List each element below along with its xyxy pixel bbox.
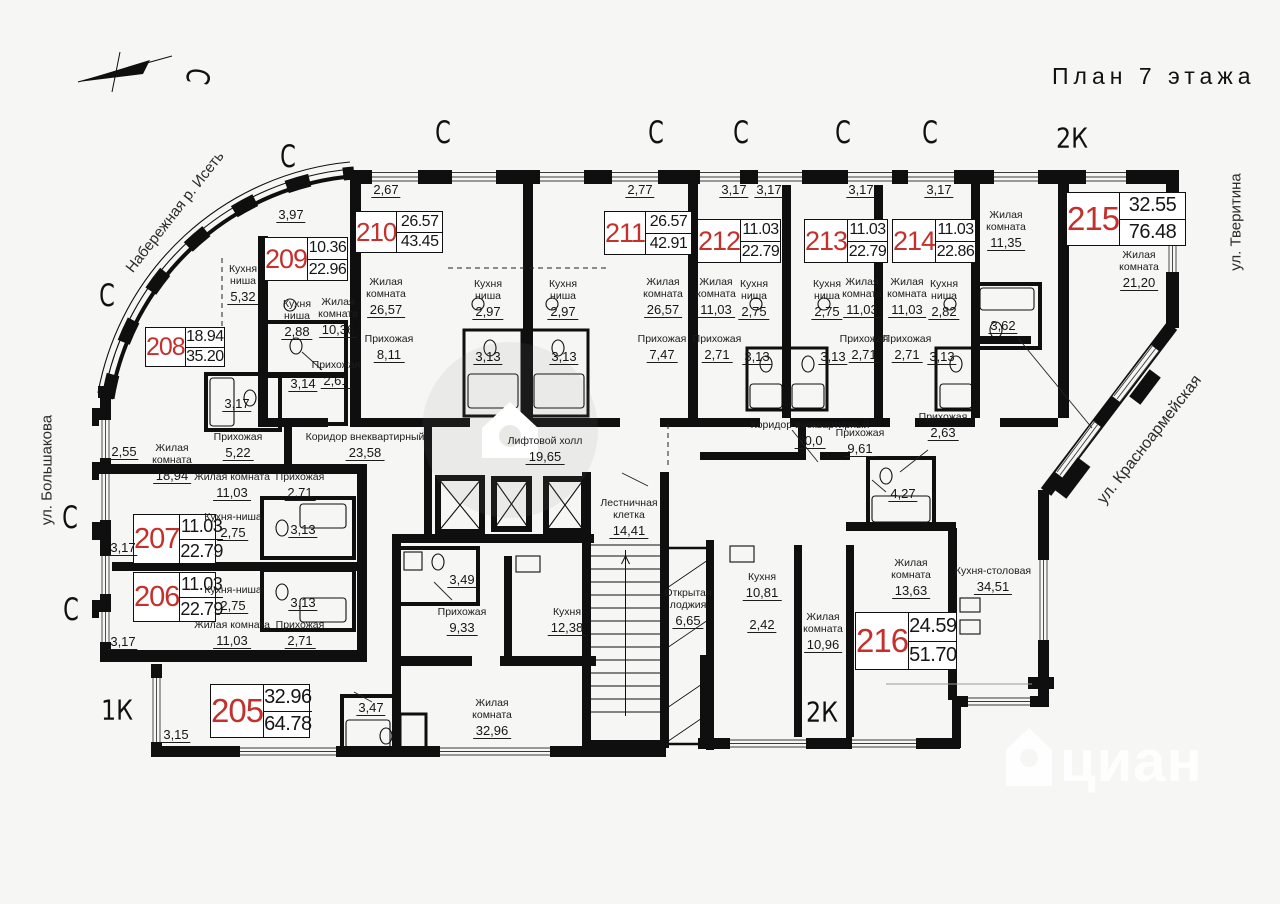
room-name: Прихожая bbox=[276, 472, 325, 484]
apartment-number: 208 bbox=[146, 328, 186, 366]
room-name: Жилая bbox=[643, 277, 683, 289]
room-label: Жилаякомната10,36 bbox=[318, 297, 358, 338]
room-area: 11,35 bbox=[987, 236, 1025, 252]
room-label: Кухня-ниша2,75 bbox=[204, 585, 262, 615]
apartment-number: 209 bbox=[265, 238, 308, 280]
section-mark: С bbox=[733, 115, 749, 152]
apartment-areas: 24.5951.70 bbox=[909, 613, 957, 669]
room-name: Прихожая bbox=[438, 607, 487, 619]
dimension-value: 3,97 bbox=[276, 207, 305, 223]
apartment-number: 207 bbox=[134, 515, 180, 563]
apartment-living-area: 10.36 bbox=[308, 238, 347, 259]
room-area: 9,61 bbox=[844, 442, 875, 458]
room-area: 18,94 bbox=[153, 469, 192, 485]
room-label: Жилаякомната26,57 bbox=[366, 277, 406, 318]
room-label: Жилаякомната26,57 bbox=[643, 277, 683, 318]
apartment-table: 21026.5743.45 bbox=[355, 211, 443, 253]
room-area: 9,33 bbox=[446, 621, 477, 637]
dimension-value: 3,17 bbox=[719, 182, 748, 198]
floorplan-page: { "title": "План 7 этажа", "watermark": … bbox=[0, 0, 1280, 904]
room-name: комната bbox=[842, 289, 882, 301]
room-area: 11,03 bbox=[213, 486, 251, 502]
apartment-areas: 32.9664.78 bbox=[264, 685, 312, 737]
apartment-table: 21211.0322.79 bbox=[697, 219, 781, 263]
room-area: 2,71 bbox=[284, 486, 315, 502]
room-label: Прихожая9,61 bbox=[836, 428, 885, 458]
apartment-table: 21411.0322.86 bbox=[892, 219, 976, 263]
dimension-value: 3,15 bbox=[161, 727, 190, 743]
room-area: 2,75 bbox=[217, 599, 248, 615]
room-label: Жилаякомната13,63 bbox=[891, 558, 931, 599]
apartment-total-area: 22.86 bbox=[936, 241, 975, 263]
room-name: Кухня-столовая bbox=[955, 566, 1031, 578]
room-name: Жилая bbox=[887, 277, 927, 289]
dimension-value: 2,55 bbox=[109, 444, 138, 460]
dimension-value: 3,13 bbox=[818, 349, 847, 365]
room-name: Жилая bbox=[696, 277, 736, 289]
room-area: 2,82 bbox=[928, 305, 959, 321]
room-name: комната bbox=[986, 222, 1026, 234]
room-name: Кухня bbox=[738, 279, 769, 291]
apartment-table: 21126.5742.91 bbox=[604, 211, 692, 255]
room-name: Прихожая bbox=[276, 620, 325, 632]
room-area: 12,38 bbox=[548, 621, 587, 637]
room-name: Прихожая bbox=[312, 360, 361, 372]
room-name: ниша bbox=[738, 291, 769, 303]
apartment-number: 213 bbox=[805, 220, 848, 262]
dimension-value: 3,17 bbox=[754, 182, 783, 198]
apartment-total-area: 42.91 bbox=[646, 233, 691, 255]
room-area: 13,63 bbox=[892, 584, 931, 600]
room-name: Жилая bbox=[891, 558, 931, 570]
dimension-value: 3,47 bbox=[356, 700, 385, 716]
room-name: Кухня bbox=[547, 279, 578, 291]
apartment-living-area: 26.57 bbox=[646, 212, 691, 233]
apartment-living-area: 11.03 bbox=[741, 220, 780, 241]
apartment-living-area: 26.57 bbox=[397, 212, 442, 232]
room-name: комната bbox=[643, 289, 683, 301]
room-name: Прихожая bbox=[836, 428, 885, 440]
room-area: 2,61 bbox=[320, 374, 351, 390]
room-area: 19,65 bbox=[526, 450, 565, 466]
dimension-value: 3,17 bbox=[222, 396, 251, 412]
room-name: Жилая комната bbox=[194, 620, 270, 632]
apartment-areas: 26.5742.91 bbox=[646, 212, 691, 254]
section-mark: С bbox=[835, 115, 851, 152]
apartment-total-area: 43.45 bbox=[397, 232, 442, 253]
room-name: клетка bbox=[600, 510, 657, 522]
room-area: 2,71 bbox=[284, 634, 315, 650]
apartment-areas: 11.0322.79 bbox=[848, 220, 887, 262]
room-area: 2,88 bbox=[281, 325, 312, 341]
dimension-value: 3,13 bbox=[288, 522, 317, 538]
dimension-value: 3,49 bbox=[447, 572, 476, 588]
apartment-number: 210 bbox=[356, 212, 397, 252]
apartment-table: 21624.5951.70 bbox=[855, 612, 957, 670]
room-name: Прихожая bbox=[919, 412, 968, 424]
apartment-number: 216 bbox=[856, 613, 909, 669]
apartment-living-area: 11.03 bbox=[936, 220, 975, 241]
room-area: 2,75 bbox=[738, 305, 769, 321]
section-mark: С bbox=[922, 115, 938, 152]
room-label: Прихожая2,71 bbox=[276, 472, 325, 502]
room-area: 8,11 bbox=[374, 348, 404, 364]
room-area: 14,41 bbox=[610, 524, 649, 540]
room-area: 11,03 bbox=[697, 303, 735, 319]
apartment-total-area: 22.79 bbox=[848, 241, 887, 263]
street-label: Набережная р. Исеть bbox=[122, 148, 227, 276]
room-label: Прихожая2,71 bbox=[693, 334, 742, 364]
room-name: Жилая bbox=[152, 443, 192, 455]
apartment-living-area: 32.96 bbox=[264, 685, 312, 711]
apartment-areas: 32.5576.48 bbox=[1120, 193, 1185, 245]
room-area: 2,63 bbox=[927, 426, 958, 442]
room-name: Кухня bbox=[811, 279, 842, 291]
apartment-living-area: 32.55 bbox=[1120, 193, 1185, 219]
room-label: Коридор внеквартирный23,58 bbox=[306, 432, 425, 462]
room-label: Жилая комната11,03 bbox=[194, 472, 270, 502]
room-name: Жилая bbox=[842, 277, 882, 289]
apartment-total-area: 22.79 bbox=[180, 539, 223, 564]
room-area: 11,03 bbox=[843, 303, 881, 319]
dimension-value: 4,27 bbox=[888, 486, 917, 502]
room-name: ниша bbox=[928, 291, 959, 303]
dimension-value: 3,13 bbox=[288, 595, 317, 611]
room-name: Жилая bbox=[472, 698, 512, 710]
room-area: 2,71 bbox=[848, 348, 879, 364]
dimension-value: 2,77 bbox=[625, 182, 654, 198]
room-label: Кухняниша5,32 bbox=[227, 264, 258, 305]
room-label: Прихожая2,61 bbox=[312, 360, 361, 390]
dimension-value: 3,13 bbox=[742, 349, 771, 365]
apartment-total-area: 35.20 bbox=[186, 347, 224, 367]
room-label: Кухня-ниша2,75 bbox=[204, 512, 262, 542]
room-label: Кухняниша2,75 bbox=[811, 279, 842, 320]
room-name: ниша bbox=[472, 291, 503, 303]
room-name: комната bbox=[152, 455, 192, 467]
section-mark: С bbox=[178, 65, 217, 87]
room-label: Прихожая9,33 bbox=[438, 607, 487, 637]
room-label: Жилаякомната11,03 bbox=[887, 277, 927, 318]
room-label: Кухняниша2,75 bbox=[738, 279, 769, 320]
room-label: Кухняниша2,82 bbox=[928, 279, 959, 320]
room-area: 23,58 bbox=[346, 446, 385, 462]
room-name: комната bbox=[696, 289, 736, 301]
section-mark: С bbox=[648, 115, 664, 152]
unit-type-label: 2К bbox=[806, 696, 838, 729]
room-label: Лифтовой холл19,65 bbox=[508, 436, 583, 466]
room-name: Коридор внеквартирный bbox=[306, 432, 425, 444]
room-name: Кухня bbox=[928, 279, 959, 291]
dimension-value: 2,42 bbox=[747, 617, 776, 633]
room-area: 7,47 bbox=[646, 348, 677, 364]
dimension-value: 3,17 bbox=[108, 540, 137, 556]
room-label: Кухня10,81 bbox=[743, 572, 782, 602]
room-area: 2,71 bbox=[701, 348, 732, 364]
room-area: 10,36 bbox=[319, 323, 358, 339]
apartment-total-area: 64.78 bbox=[264, 711, 312, 738]
apartment-number: 205 bbox=[211, 685, 264, 737]
room-name: Жилая bbox=[366, 277, 406, 289]
room-name: Жилая bbox=[986, 210, 1026, 222]
room-name: комната bbox=[366, 289, 406, 301]
dimension-value: 3,13 bbox=[927, 349, 956, 365]
room-name: комната bbox=[887, 289, 927, 301]
room-name: комната bbox=[472, 710, 512, 722]
room-name: комната bbox=[318, 309, 358, 321]
room-name: ниша bbox=[281, 311, 312, 323]
room-area: 2,75 bbox=[811, 305, 842, 321]
room-label: Кухняниша2,97 bbox=[547, 279, 578, 320]
room-label: Прихожая5,22 bbox=[214, 432, 263, 462]
room-label: Жилаякомната11,35 bbox=[986, 210, 1026, 251]
apartment-areas: 11.0322.86 bbox=[936, 220, 975, 262]
room-label: Жилая комната11,03 bbox=[194, 620, 270, 650]
room-name: Жилая bbox=[318, 297, 358, 309]
room-label: Прихожая2,63 bbox=[919, 412, 968, 442]
room-name: Лестничная bbox=[600, 498, 657, 510]
room-name: Жилая bbox=[1119, 250, 1159, 262]
room-area: 26,57 bbox=[367, 303, 406, 319]
room-area: 10,81 bbox=[743, 586, 782, 602]
room-name: Кухня bbox=[472, 279, 503, 291]
room-name: лоджия bbox=[664, 600, 711, 612]
room-name: Жилая bbox=[803, 612, 843, 624]
room-area: 2,97 bbox=[547, 305, 578, 321]
street-label: ул. Тверитина bbox=[1228, 173, 1245, 271]
section-mark: С bbox=[435, 115, 451, 152]
room-name: Кухня bbox=[548, 607, 587, 619]
street-label: ул. Красноармейская bbox=[1094, 372, 1206, 508]
section-mark: С bbox=[63, 592, 79, 629]
room-name: ниша bbox=[547, 291, 578, 303]
room-area: 21,20 bbox=[1120, 276, 1159, 292]
room-label: Кухняниша2,88 bbox=[281, 299, 312, 340]
apartment-table: 20910.3622.96 bbox=[264, 237, 348, 281]
apartment-areas: 11.0322.79 bbox=[741, 220, 780, 262]
label-layer: 20532.9664.7820611.0322.7920711.0322.792… bbox=[0, 0, 1280, 904]
room-label: Кухня12,38 bbox=[548, 607, 587, 637]
room-name: Прихожая bbox=[883, 334, 932, 346]
apartment-total-area: 76.48 bbox=[1120, 219, 1185, 246]
room-label: Кухняниша2,97 bbox=[472, 279, 503, 320]
apartment-total-area: 22.79 bbox=[741, 241, 780, 263]
apartment-areas: 26.5743.45 bbox=[397, 212, 442, 252]
apartment-areas: 10.3622.96 bbox=[308, 238, 347, 280]
apartment-number: 215 bbox=[1067, 193, 1120, 245]
room-area: 11,03 bbox=[213, 634, 251, 650]
room-area: 2,71 bbox=[891, 348, 922, 364]
apartment-table: 20532.9664.78 bbox=[210, 684, 310, 738]
apartment-areas: 18.9435.20 bbox=[186, 328, 224, 366]
apartment-table: 20818.9435.20 bbox=[145, 327, 225, 367]
apartment-number: 214 bbox=[893, 220, 936, 262]
room-area: 2,97 bbox=[472, 305, 503, 321]
room-label: Жилаякомната11,03 bbox=[696, 277, 736, 318]
dimension-value: 2,67 bbox=[371, 182, 400, 198]
room-name: Жилая комната bbox=[194, 472, 270, 484]
room-area: 34,51 bbox=[974, 580, 1013, 596]
dimension-value: 3,17 bbox=[108, 634, 137, 650]
room-area: 11,03 bbox=[888, 303, 926, 319]
room-name: ниша bbox=[811, 291, 842, 303]
room-name: Прихожая bbox=[693, 334, 742, 346]
room-label: Открытаялоджия6,65 bbox=[664, 588, 711, 629]
room-name: Прихожая bbox=[365, 334, 414, 346]
room-label: Кухня-столовая34,51 bbox=[955, 566, 1031, 596]
unit-type-label: 2К bbox=[1056, 122, 1088, 155]
dimension-value: 3,13 bbox=[473, 349, 502, 365]
apartment-number: 206 bbox=[134, 573, 180, 621]
apartment-total-area: 51.70 bbox=[909, 641, 957, 670]
room-label: Жилаякомната21,20 bbox=[1119, 250, 1159, 291]
room-area: 10,96 bbox=[804, 638, 843, 654]
room-name: комната bbox=[803, 624, 843, 636]
dimension-value: 3,13 bbox=[549, 349, 578, 365]
apartment-table: 21532.5576.48 bbox=[1066, 192, 1186, 246]
room-name: ниша bbox=[227, 276, 258, 288]
apartment-living-area: 11.03 bbox=[848, 220, 887, 241]
unit-type-label: 1К bbox=[101, 694, 133, 727]
dimension-value: 3,17 bbox=[924, 182, 953, 198]
apartment-living-area: 24.59 bbox=[909, 613, 957, 641]
room-name: Кухня bbox=[281, 299, 312, 311]
apartment-number: 211 bbox=[605, 212, 646, 254]
street-label: ул. Большакова bbox=[39, 415, 56, 525]
section-mark: С bbox=[62, 500, 78, 537]
room-name: Прихожая bbox=[840, 334, 889, 346]
room-name: Лифтовой холл bbox=[508, 436, 583, 448]
room-name: Прихожая bbox=[214, 432, 263, 444]
room-name: Открытая bbox=[664, 588, 711, 600]
room-label: Жилаякомната32,96 bbox=[472, 698, 512, 739]
room-label: Жилаякомната11,03 bbox=[842, 277, 882, 318]
room-area: 2,75 bbox=[217, 526, 248, 542]
room-area: 5,32 bbox=[227, 290, 258, 306]
room-area: 26,57 bbox=[644, 303, 683, 319]
dimension-value: 3,17 bbox=[846, 182, 875, 198]
apartment-number: 212 bbox=[698, 220, 741, 262]
room-name: Кухня-ниша bbox=[204, 512, 262, 524]
room-name: комната bbox=[891, 570, 931, 582]
room-area: 6,65 bbox=[672, 614, 703, 630]
room-area: 32,96 bbox=[473, 724, 512, 740]
room-label: Жилаякомната10,96 bbox=[803, 612, 843, 653]
room-name: Кухня bbox=[743, 572, 782, 584]
section-mark: С bbox=[99, 278, 115, 315]
room-label: Лестничнаяклетка14,41 bbox=[600, 498, 657, 539]
room-name: Кухня-ниша bbox=[204, 585, 262, 597]
dimension-value: 3,14 bbox=[288, 376, 317, 392]
dimension-value: 3,62 bbox=[988, 318, 1017, 334]
apartment-total-area: 22.96 bbox=[308, 259, 347, 281]
room-label: Прихожая8,11 bbox=[365, 334, 414, 364]
room-area: 20,0 bbox=[794, 434, 825, 450]
room-label: Прихожая7,47 bbox=[638, 334, 687, 364]
room-area: 5,22 bbox=[222, 446, 253, 462]
apartment-living-area: 18.94 bbox=[186, 328, 224, 347]
section-mark: С bbox=[280, 139, 296, 176]
room-name: комната bbox=[1119, 262, 1159, 274]
room-label: Жилаякомната18,94 bbox=[152, 443, 192, 484]
room-label: Прихожая2,71 bbox=[276, 620, 325, 650]
room-name: Прихожая bbox=[638, 334, 687, 346]
room-name: Кухня bbox=[227, 264, 258, 276]
apartment-table: 21311.0322.79 bbox=[804, 219, 888, 263]
room-label: Прихожая2,71 bbox=[883, 334, 932, 364]
